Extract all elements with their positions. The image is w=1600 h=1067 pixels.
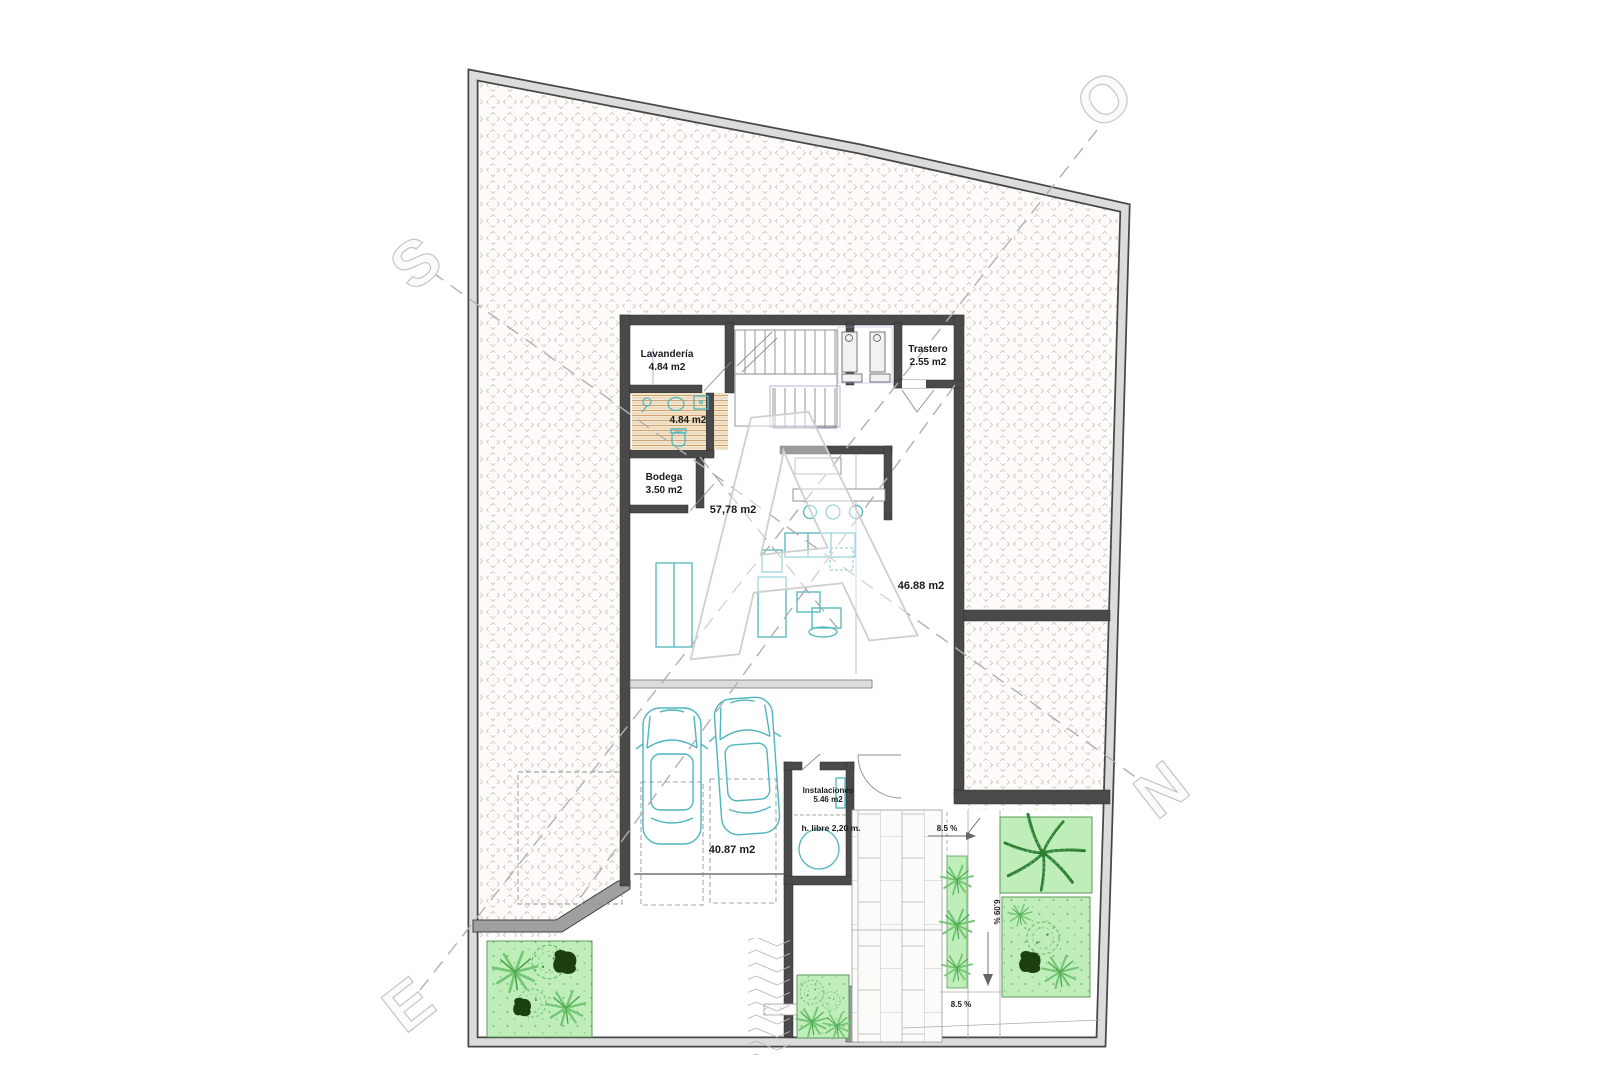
wall-instalaciones-bottom [784,876,854,885]
garden-bottom-left [487,941,592,1037]
label-instalaciones-name: Instalaciones [803,786,854,795]
wall-left [620,315,630,886]
wall-patio-divider [964,610,1110,621]
label-bano-area: 4.84 m2 [670,415,707,426]
wall-patio-bottom [954,790,1110,804]
garden-bottom-center [796,975,851,1039]
garden-right-upper [1000,814,1092,893]
label-patio-area: 46.88 m2 [898,580,944,592]
label-slope-upper: 8.5 % [937,824,957,833]
plant-dark-shrub [513,998,531,1016]
chevron-paving [748,938,790,1055]
label-salon-area: 57,78 m2 [710,504,756,516]
label-bodega-name: Bodega [646,472,683,483]
label-headroom: h. libre 2,20 m. [801,823,860,833]
label-lavanderia-name: Lavandería [641,349,694,360]
wall-instalaciones-top-a [784,762,802,770]
label-slope-side: 6.09 % [992,900,1001,925]
floor-plan-svg: A S O N E Lavandería 4.84 m2 4.84 m2 Tra… [0,0,1600,1067]
watermark-letter-s: S [377,221,455,304]
plant-dark-shrub [553,950,576,974]
label-slope-lower: 8.5 % [951,1000,971,1009]
label-trastero-name: Trastero [908,344,947,355]
label-garaje-area: 40.87 m2 [709,844,755,856]
garden-right-lower [1002,897,1090,997]
trastero-door-gap [902,380,926,388]
watermark-letter-e: E [369,963,447,1046]
wall-instalaciones-left [784,762,792,884]
brick-path [852,810,942,1042]
label-instalaciones-area: 5.46 m2 [813,795,843,804]
label-trastero-area: 2.55 m2 [910,357,947,368]
label-lavanderia-area: 4.84 m2 [649,362,686,373]
label-bodega-area: 3.50 m2 [646,485,683,496]
wall-top [620,315,964,325]
watermark-letter-a: A [650,329,934,733]
watermark-letter-o: O [1062,56,1146,143]
plant-dark-shrub [1019,951,1040,973]
floor-plan-sheet: A S O N E Lavandería 4.84 m2 4.84 m2 Tra… [0,0,1600,1067]
watermark-letter-n: N [1121,747,1202,832]
